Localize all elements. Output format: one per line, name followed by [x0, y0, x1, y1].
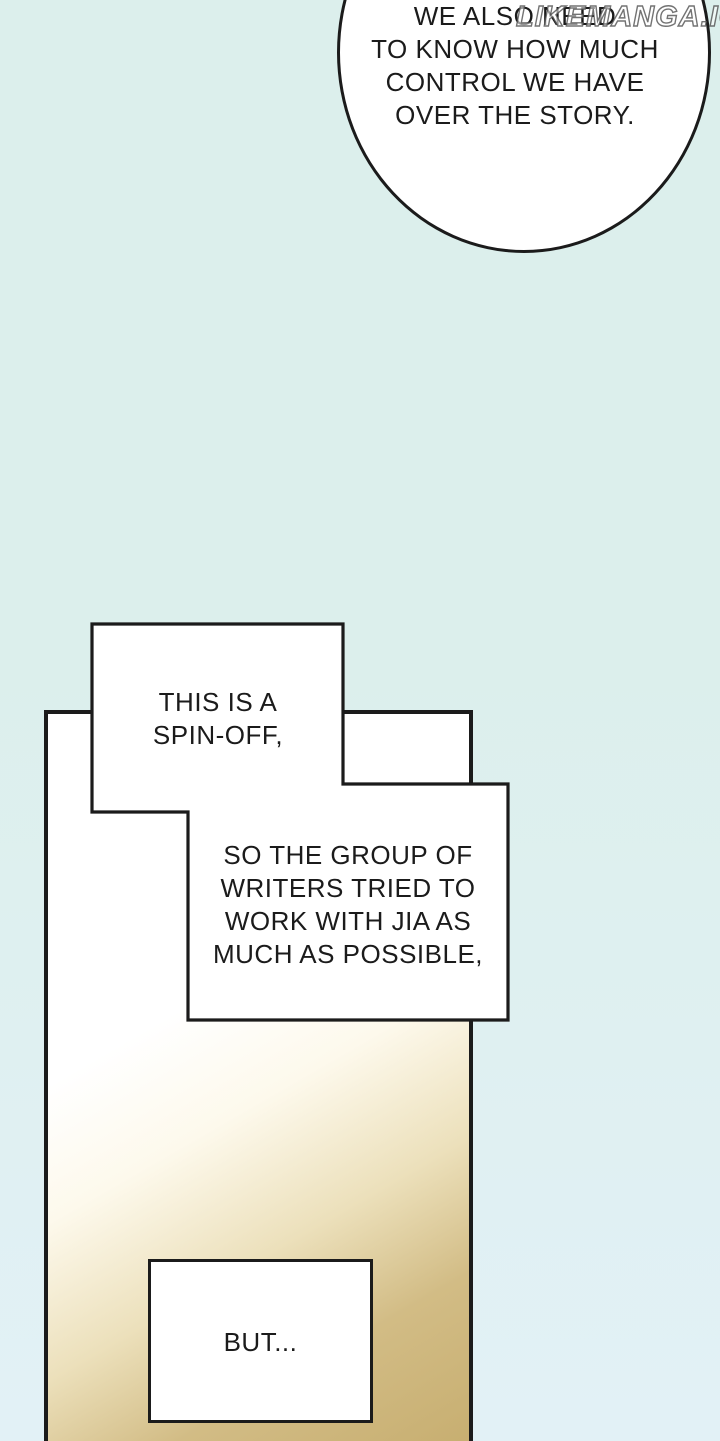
site-watermark: LIKEMANGA.IO [516, 2, 720, 32]
caption-line: MUCH AS POSSIBLE, [188, 938, 508, 971]
speech-line: TO KNOW HOW MUCH [335, 33, 695, 66]
speech-line: CONTROL WE HAVE [335, 66, 695, 99]
caption-line: THIS IS A [94, 686, 342, 719]
caption-but-text: BUT... [148, 1326, 373, 1359]
speech-line: OVER THE STORY. [335, 99, 695, 132]
caption-line: WRITERS TRIED TO [188, 872, 508, 905]
caption-line: SO THE GROUP OF [188, 839, 508, 872]
caption-line: BUT... [148, 1326, 373, 1359]
caption-line: SPIN-OFF, [94, 719, 342, 752]
caption-b-text: SO THE GROUP OF WRITERS TRIED TO WORK WI… [188, 839, 508, 971]
caption-a-text: THIS IS A SPIN-OFF, [94, 686, 342, 752]
caption-line: WORK WITH JIA AS [188, 905, 508, 938]
comic-page: WE ALSO NEED TO KNOW HOW MUCH CONTROL WE… [0, 0, 720, 1441]
